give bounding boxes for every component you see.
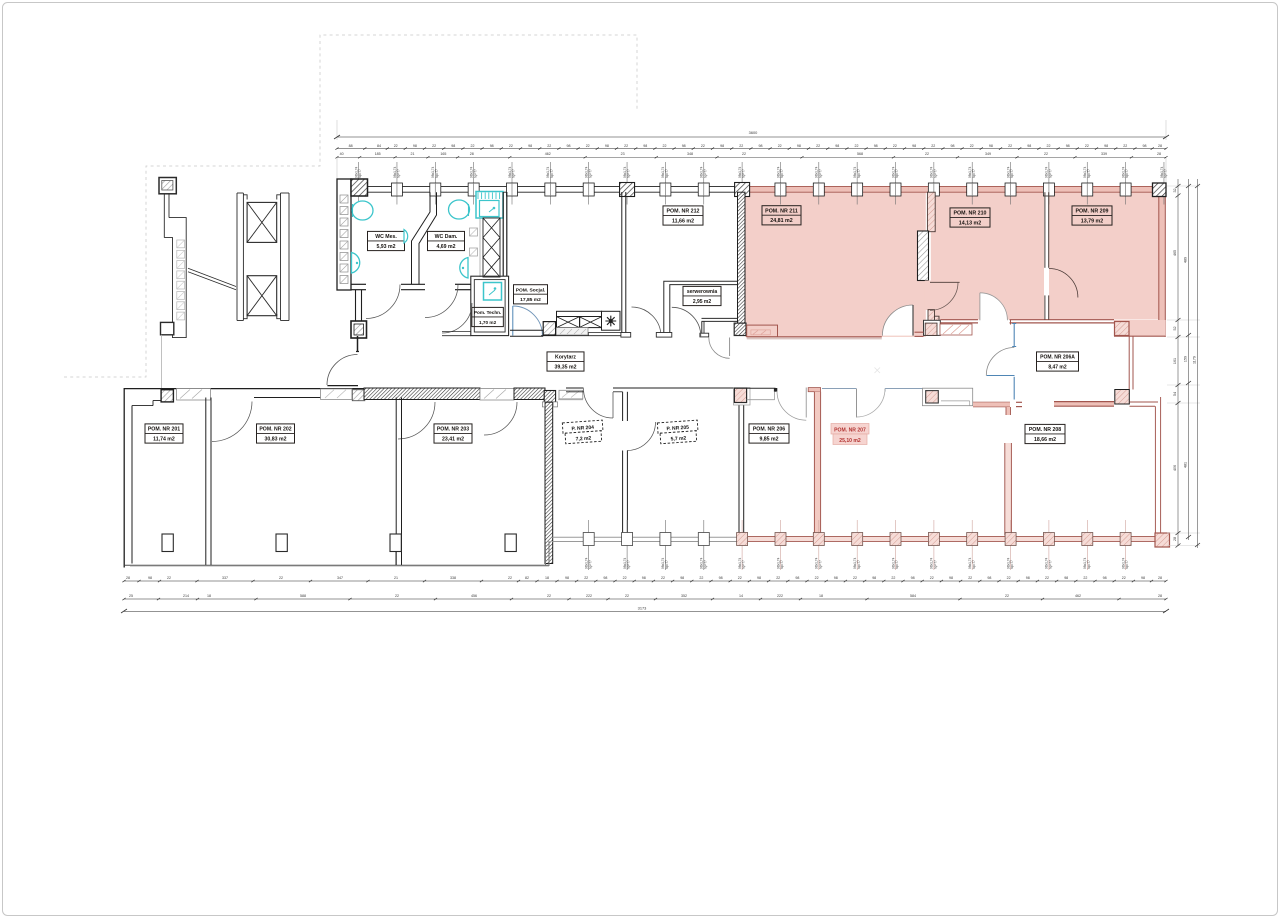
- svg-text:338: 338: [450, 576, 456, 580]
- svg-text:22: 22: [1007, 576, 1011, 580]
- svg-text:98: 98: [680, 576, 684, 580]
- svg-text:22: 22: [432, 144, 436, 148]
- svg-text:22: 22: [701, 144, 705, 148]
- svg-text:POM. NR 202: POM. NR 202: [259, 427, 291, 433]
- svg-text:POM. NR 212: POM. NR 212: [667, 209, 700, 215]
- svg-text:22: 22: [893, 144, 897, 148]
- svg-text:22: 22: [925, 152, 929, 156]
- svg-text:POM. NR 208: POM. NR 208: [1029, 427, 1061, 433]
- svg-text:21: 21: [411, 152, 415, 156]
- svg-text:Pom. Techn.: Pom. Techn.: [474, 310, 502, 315]
- svg-text:22: 22: [663, 144, 667, 148]
- svg-text:POM. Socjal.: POM. Socjal.: [516, 287, 546, 293]
- svg-text:22: 22: [778, 144, 782, 148]
- svg-text:18: 18: [207, 594, 211, 598]
- svg-text:hp=77: hp=77: [780, 169, 784, 178]
- svg-text:1,70 m2: 1,70 m2: [479, 320, 497, 325]
- svg-text:22: 22: [625, 594, 629, 598]
- svg-text:28: 28: [1173, 537, 1177, 541]
- svg-text:82: 82: [525, 576, 529, 580]
- svg-text:165: 165: [440, 152, 446, 156]
- svg-text:30,83 m2: 30,83 m2: [265, 436, 287, 442]
- svg-text:98: 98: [912, 144, 916, 148]
- svg-text:98: 98: [605, 144, 609, 148]
- svg-text:98: 98: [759, 144, 763, 148]
- svg-text:14: 14: [739, 594, 743, 598]
- svg-text:hp=77: hp=77: [358, 169, 362, 178]
- svg-text:98: 98: [567, 144, 571, 148]
- svg-text:98: 98: [834, 576, 838, 580]
- svg-text:hp=77: hp=77: [818, 560, 822, 569]
- svg-text:22: 22: [395, 594, 399, 598]
- svg-text:POM. NR 206: POM. NR 206: [753, 427, 785, 433]
- svg-text:28: 28: [1158, 594, 1162, 598]
- svg-text:22: 22: [1083, 576, 1087, 580]
- svg-text:185: 185: [375, 152, 381, 156]
- svg-text:462: 462: [545, 152, 551, 156]
- svg-text:22: 22: [1008, 144, 1012, 148]
- svg-text:98: 98: [757, 576, 761, 580]
- svg-text:52: 52: [1173, 326, 1177, 330]
- svg-text:13,79 m2: 13,79 m2: [1081, 218, 1103, 224]
- svg-text:481: 481: [1184, 462, 1188, 468]
- svg-text:159: 159: [1184, 356, 1188, 362]
- svg-text:22: 22: [1123, 144, 1127, 148]
- svg-text:18: 18: [545, 576, 549, 580]
- svg-text:98: 98: [911, 576, 915, 580]
- svg-text:POM. NR 211: POM. NR 211: [765, 208, 798, 214]
- svg-text:hp=77: hp=77: [857, 169, 861, 178]
- svg-text:22: 22: [547, 594, 551, 598]
- svg-text:hp=77: hp=77: [1010, 560, 1014, 569]
- svg-text:2,95 m2: 2,95 m2: [693, 299, 712, 305]
- svg-text:98: 98: [1064, 576, 1068, 580]
- svg-text:22: 22: [584, 576, 588, 580]
- svg-text:32: 32: [1173, 188, 1177, 192]
- svg-text:hp=77: hp=77: [818, 169, 822, 178]
- svg-text:9,85 m2: 9,85 m2: [759, 436, 778, 442]
- svg-text:21: 21: [394, 576, 398, 580]
- svg-text:98: 98: [451, 144, 455, 148]
- svg-text:98: 98: [951, 144, 955, 148]
- svg-text:hp=77: hp=77: [1049, 169, 1053, 178]
- svg-text:3173: 3173: [638, 606, 647, 611]
- svg-text:hp=77: hp=77: [665, 560, 669, 569]
- svg-text:POM. NR 210: POM. NR 210: [954, 211, 987, 217]
- svg-text:hp=77: hp=77: [934, 560, 938, 569]
- svg-text:14,13 m2: 14,13 m2: [959, 220, 981, 226]
- svg-text:84: 84: [377, 144, 381, 148]
- svg-text:hp=77: hp=77: [550, 169, 554, 178]
- svg-text:222: 222: [777, 594, 783, 598]
- svg-text:98: 98: [1066, 144, 1070, 148]
- svg-text:3600: 3600: [749, 130, 758, 135]
- svg-text:22: 22: [279, 576, 283, 580]
- svg-text:22: 22: [816, 144, 820, 148]
- svg-text:588: 588: [300, 594, 306, 598]
- svg-text:22: 22: [815, 576, 819, 580]
- svg-text:22: 22: [930, 576, 934, 580]
- svg-text:22: 22: [742, 152, 746, 156]
- svg-text:98: 98: [719, 576, 723, 580]
- svg-text:465: 465: [1173, 250, 1177, 256]
- svg-text:hp=77: hp=77: [435, 169, 439, 178]
- svg-text:22: 22: [509, 144, 513, 148]
- svg-text:98: 98: [528, 144, 532, 148]
- svg-text:22: 22: [1044, 152, 1048, 156]
- svg-text:hp=77: hp=77: [588, 169, 592, 178]
- svg-text:98: 98: [1103, 576, 1107, 580]
- svg-text:40: 40: [340, 152, 344, 156]
- svg-text:98: 98: [874, 144, 878, 148]
- svg-text:hp=77: hp=77: [972, 169, 976, 178]
- svg-text:98: 98: [413, 144, 417, 148]
- svg-text:22: 22: [586, 144, 590, 148]
- svg-text:4,69 m2: 4,69 m2: [436, 244, 455, 250]
- svg-text:hp=77: hp=77: [895, 560, 899, 569]
- svg-text:22: 22: [968, 576, 972, 580]
- svg-text:24,81 m2: 24,81 m2: [770, 218, 792, 224]
- svg-text:POM. NR 209: POM. NR 209: [1076, 209, 1109, 215]
- svg-text:22: 22: [853, 576, 857, 580]
- svg-text:489: 489: [1184, 257, 1188, 263]
- svg-text:hp=77: hp=77: [627, 169, 631, 178]
- svg-text:serwerownia: serwerownia: [687, 289, 718, 295]
- svg-text:22: 22: [776, 576, 780, 580]
- svg-text:POM. NR 207: POM. NR 207: [834, 428, 866, 434]
- svg-text:17,85 m2: 17,85 m2: [520, 297, 541, 303]
- svg-text:hp=77: hp=77: [588, 560, 592, 569]
- svg-text:22: 22: [547, 144, 551, 148]
- svg-text:214: 214: [183, 594, 189, 598]
- svg-text:hp=77: hp=77: [1087, 560, 1091, 569]
- svg-text:7,2 m2: 7,2 m2: [576, 435, 592, 442]
- svg-text:22: 22: [471, 144, 475, 148]
- svg-text:hp=77: hp=77: [857, 560, 861, 569]
- svg-text:22: 22: [739, 144, 743, 148]
- svg-text:hp=77: hp=77: [1125, 560, 1129, 569]
- svg-text:Korytarz: Korytarz: [555, 355, 576, 361]
- svg-text:hp=77: hp=77: [473, 169, 477, 178]
- svg-text:POM. NR 203: POM. NR 203: [437, 427, 469, 433]
- svg-text:98: 98: [565, 576, 569, 580]
- svg-text:584: 584: [910, 594, 916, 598]
- svg-text:hp=77: hp=77: [397, 169, 401, 178]
- svg-text:88: 88: [349, 144, 353, 148]
- svg-text:POM. NR 201: POM. NR 201: [148, 427, 180, 433]
- svg-text:11,74 m2: 11,74 m2: [153, 436, 175, 442]
- svg-text:18,66 m2: 18,66 m2: [1034, 437, 1056, 443]
- svg-text:98: 98: [148, 576, 152, 580]
- svg-text:22: 22: [970, 144, 974, 148]
- svg-text:462: 462: [1075, 594, 1081, 598]
- svg-text:161: 161: [1173, 358, 1177, 364]
- svg-text:54: 54: [1173, 392, 1177, 396]
- svg-text:18: 18: [819, 594, 823, 598]
- svg-text:22: 22: [1047, 144, 1051, 148]
- svg-text:568: 568: [857, 152, 863, 156]
- svg-text:22: 22: [931, 144, 935, 148]
- svg-text:98: 98: [1104, 144, 1108, 148]
- svg-text:98: 98: [1026, 576, 1030, 580]
- svg-text:hp=77: hp=77: [1087, 169, 1091, 178]
- svg-text:406: 406: [1173, 465, 1177, 471]
- svg-text:349: 349: [985, 152, 991, 156]
- svg-text:25,10 m2: 25,10 m2: [839, 438, 861, 444]
- svg-text:98: 98: [603, 576, 607, 580]
- svg-text:5,93 m2: 5,93 m2: [376, 244, 395, 250]
- svg-text:hp=77: hp=77: [895, 169, 899, 178]
- svg-text:22: 22: [394, 144, 398, 148]
- svg-text:339: 339: [1101, 152, 1107, 156]
- svg-text:28: 28: [1157, 152, 1161, 156]
- svg-text:WC Dam.: WC Dam.: [435, 234, 458, 240]
- svg-text:hp=77: hp=77: [742, 560, 746, 569]
- svg-text:28: 28: [1158, 576, 1162, 580]
- svg-text:22: 22: [855, 144, 859, 148]
- svg-text:28: 28: [126, 576, 130, 580]
- svg-text:hp=77: hp=77: [512, 169, 516, 178]
- svg-text:5,7 m2: 5,7 m2: [671, 435, 687, 442]
- svg-text:98: 98: [720, 144, 724, 148]
- svg-text:22: 22: [699, 576, 703, 580]
- svg-text:352: 352: [681, 594, 687, 598]
- svg-text:347: 347: [337, 576, 343, 580]
- svg-text:hp=77: hp=77: [703, 560, 707, 569]
- svg-text:28: 28: [1158, 144, 1162, 148]
- svg-text:22: 22: [167, 576, 171, 580]
- svg-text:22: 22: [623, 576, 627, 580]
- svg-text:98: 98: [795, 576, 799, 580]
- svg-text:POM. NR 206A: POM. NR 206A: [1040, 355, 1075, 361]
- svg-text:11,66 m2: 11,66 m2: [672, 218, 694, 224]
- svg-text:28: 28: [470, 152, 474, 156]
- svg-text:hp=77: hp=77: [665, 169, 669, 178]
- svg-text:456: 456: [471, 594, 477, 598]
- svg-text:hp=77: hp=77: [742, 169, 746, 178]
- svg-text:hp=77: hp=77: [1049, 560, 1053, 569]
- svg-text:hp=77: hp=77: [703, 169, 707, 178]
- svg-text:hp=77: hp=77: [933, 169, 937, 178]
- svg-text:22: 22: [1085, 144, 1089, 148]
- svg-text:22: 22: [1045, 576, 1049, 580]
- svg-text:337: 337: [222, 576, 228, 580]
- svg-text:hp=77: hp=77: [1164, 169, 1168, 178]
- svg-text:hp=77: hp=77: [627, 560, 631, 569]
- svg-text:hp=77: hp=77: [1125, 169, 1129, 178]
- svg-text:98: 98: [835, 144, 839, 148]
- svg-text:22: 22: [661, 576, 665, 580]
- svg-text:98: 98: [949, 576, 953, 580]
- svg-text:WC Mes.: WC Mes.: [375, 234, 397, 240]
- svg-text:98: 98: [872, 576, 876, 580]
- svg-text:hp=77: hp=77: [972, 560, 976, 569]
- svg-text:1179: 1179: [1193, 356, 1197, 364]
- svg-text:25: 25: [129, 594, 133, 598]
- svg-text:39,35 m2: 39,35 m2: [555, 364, 577, 370]
- svg-text:hp=77: hp=77: [780, 560, 784, 569]
- svg-text:98: 98: [989, 144, 993, 148]
- svg-text:23,41 m2: 23,41 m2: [442, 436, 464, 442]
- svg-text:23: 23: [621, 152, 625, 156]
- svg-text:98: 98: [490, 144, 494, 148]
- svg-text:98: 98: [682, 144, 686, 148]
- svg-text:22: 22: [624, 144, 628, 148]
- svg-text:222: 222: [586, 594, 592, 598]
- svg-text:98: 98: [797, 144, 801, 148]
- svg-text:98: 98: [1027, 144, 1031, 148]
- svg-text:98: 98: [643, 144, 647, 148]
- svg-text:8,47 m2: 8,47 m2: [1048, 364, 1067, 370]
- svg-text:98: 98: [642, 576, 646, 580]
- svg-text:98: 98: [1143, 144, 1147, 148]
- svg-text:98: 98: [1141, 576, 1145, 580]
- svg-text:22: 22: [891, 576, 895, 580]
- svg-text:348: 348: [687, 152, 693, 156]
- svg-text:hp=77: hp=77: [1010, 169, 1014, 178]
- svg-text:22: 22: [508, 576, 512, 580]
- svg-text:22: 22: [1005, 594, 1009, 598]
- svg-text:98: 98: [987, 576, 991, 580]
- svg-text:22: 22: [738, 576, 742, 580]
- svg-text:22: 22: [1122, 576, 1126, 580]
